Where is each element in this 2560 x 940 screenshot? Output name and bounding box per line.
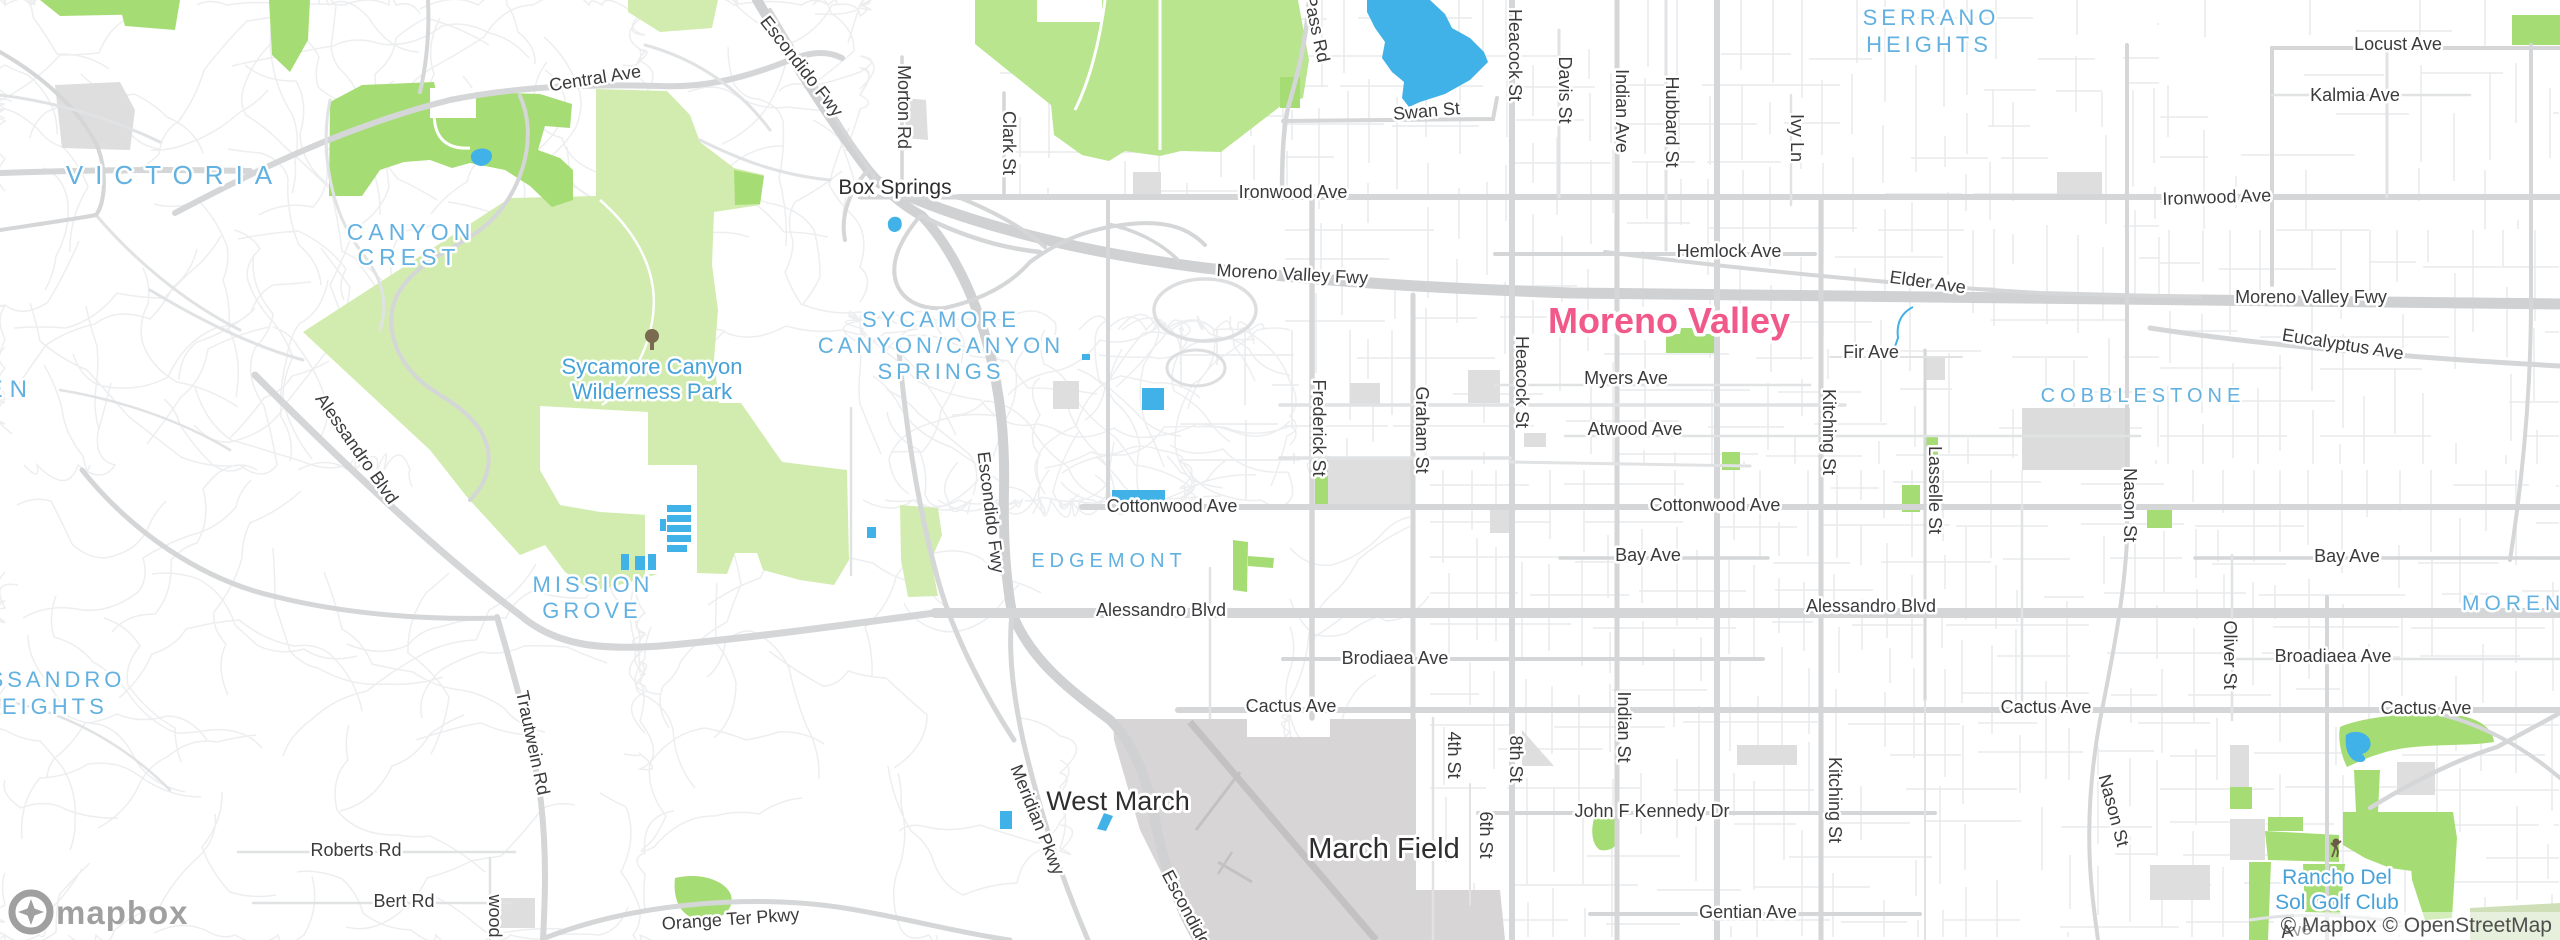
svg-text:Davis St: Davis St bbox=[1555, 56, 1575, 123]
svg-text:Alessandro Blvd: Alessandro Blvd bbox=[1096, 600, 1226, 620]
svg-text:Ivy Ln: Ivy Ln bbox=[1787, 114, 1807, 162]
svg-text:Roberts Rd: Roberts Rd bbox=[310, 840, 401, 860]
svg-text:Ironwood Ave: Ironwood Ave bbox=[1239, 182, 1348, 202]
svg-text:8th St: 8th St bbox=[1506, 735, 1526, 782]
svg-text:Myers Ave: Myers Ave bbox=[1584, 368, 1668, 388]
svg-text:HEIGHTS: HEIGHTS bbox=[1866, 32, 1992, 57]
svg-text:Lasselle St: Lasselle St bbox=[1925, 446, 1945, 534]
svg-text:Kalmia Ave: Kalmia Ave bbox=[2310, 85, 2400, 105]
svg-text:Hubbard St: Hubbard St bbox=[1662, 76, 1682, 167]
svg-text:Cactus Ave: Cactus Ave bbox=[2001, 697, 2092, 717]
svg-text:Bay Ave: Bay Ave bbox=[2314, 546, 2380, 566]
svg-text:6th St: 6th St bbox=[1476, 811, 1496, 858]
svg-text:Hemlock Ave: Hemlock Ave bbox=[1677, 241, 1782, 261]
svg-text:Kitching St: Kitching St bbox=[1825, 757, 1845, 843]
svg-text:GROVE: GROVE bbox=[542, 598, 641, 623]
svg-text:MORENO: MORENO bbox=[2462, 592, 2560, 615]
svg-text:SYCAMORE: SYCAMORE bbox=[862, 307, 1020, 332]
svg-text:Box Springs: Box Springs bbox=[838, 176, 951, 199]
svg-text:West March: West March bbox=[1046, 786, 1190, 816]
svg-text:Heacock St: Heacock St bbox=[1505, 9, 1525, 101]
svg-text:MISSION: MISSION bbox=[533, 572, 654, 597]
svg-text:Alessandro Blvd: Alessandro Blvd bbox=[1806, 596, 1936, 616]
svg-text:Oliver St: Oliver St bbox=[2220, 620, 2240, 689]
svg-text:Morton Rd: Morton Rd bbox=[894, 65, 914, 149]
svg-text:HEIGHTS: HEIGHTS bbox=[0, 694, 108, 719]
svg-text:Broadiaea Ave: Broadiaea Ave bbox=[2275, 646, 2392, 666]
svg-text:CREST: CREST bbox=[358, 244, 461, 270]
svg-text:Brodiaea Ave: Brodiaea Ave bbox=[1342, 648, 1449, 668]
svg-text:Moreno Valley: Moreno Valley bbox=[1548, 300, 1790, 341]
svg-text:Bert Rd: Bert Rd bbox=[373, 891, 434, 911]
svg-text:Gentian Ave: Gentian Ave bbox=[1699, 902, 1797, 922]
svg-text:Cottonwood Ave: Cottonwood Ave bbox=[1107, 496, 1238, 516]
svg-text:© Mapbox © OpenStreetMap: © Mapbox © OpenStreetMap bbox=[2281, 914, 2552, 937]
svg-text:Indian Ave: Indian Ave bbox=[1612, 69, 1632, 153]
svg-text:Moreno Valley Fwy: Moreno Valley Fwy bbox=[2235, 287, 2387, 307]
svg-text:Sycamore Canyon: Sycamore Canyon bbox=[562, 354, 743, 379]
svg-text:wood Rd: wood Rd bbox=[485, 893, 505, 940]
svg-text:ALESSANDRO: ALESSANDRO bbox=[0, 667, 125, 692]
svg-text:EN: EN bbox=[0, 376, 34, 403]
svg-text:Atwood Ave: Atwood Ave bbox=[1588, 419, 1683, 439]
svg-text:VICTORIA: VICTORIA bbox=[66, 160, 284, 190]
svg-text:CANYON: CANYON bbox=[347, 219, 475, 245]
svg-text:Locust Ave: Locust Ave bbox=[2354, 34, 2442, 54]
svg-text:Nason St: Nason St bbox=[2120, 468, 2140, 542]
svg-text:Cactus Ave: Cactus Ave bbox=[2381, 698, 2472, 718]
svg-text:mapbox: mapbox bbox=[56, 894, 189, 931]
svg-text:Heacock St: Heacock St bbox=[1512, 336, 1532, 428]
svg-text:Cottonwood Ave: Cottonwood Ave bbox=[1650, 495, 1781, 515]
svg-text:4th St: 4th St bbox=[1444, 731, 1464, 778]
svg-text:COBBLESTONE: COBBLESTONE bbox=[2041, 385, 2246, 407]
svg-text:SPRINGS: SPRINGS bbox=[877, 359, 1004, 384]
svg-text:Rancho Del: Rancho Del bbox=[2282, 866, 2392, 889]
svg-text:Fir Ave: Fir Ave bbox=[1843, 342, 1899, 362]
svg-text:March Field: March Field bbox=[1308, 833, 1460, 865]
svg-text:Ironwood Ave: Ironwood Ave bbox=[2162, 185, 2271, 209]
svg-text:SERRANO: SERRANO bbox=[1863, 5, 2000, 30]
svg-text:EDGEMONT: EDGEMONT bbox=[1031, 550, 1187, 572]
svg-text:Wilderness Park: Wilderness Park bbox=[572, 379, 733, 404]
svg-text:Sol Golf Club: Sol Golf Club bbox=[2275, 891, 2399, 914]
svg-text:Frederick St: Frederick St bbox=[1309, 379, 1329, 476]
svg-text:Graham St: Graham St bbox=[1412, 386, 1432, 473]
svg-text:Clark St: Clark St bbox=[999, 111, 1019, 175]
svg-text:Kitching St: Kitching St bbox=[1819, 389, 1839, 475]
svg-text:Indian St: Indian St bbox=[1614, 691, 1634, 762]
svg-text:Bay Ave: Bay Ave bbox=[1615, 545, 1681, 565]
svg-text:CANYON/CANYON: CANYON/CANYON bbox=[818, 333, 1064, 358]
svg-text:Cactus Ave: Cactus Ave bbox=[1246, 696, 1337, 716]
svg-text:John F Kennedy Dr: John F Kennedy Dr bbox=[1574, 801, 1729, 821]
